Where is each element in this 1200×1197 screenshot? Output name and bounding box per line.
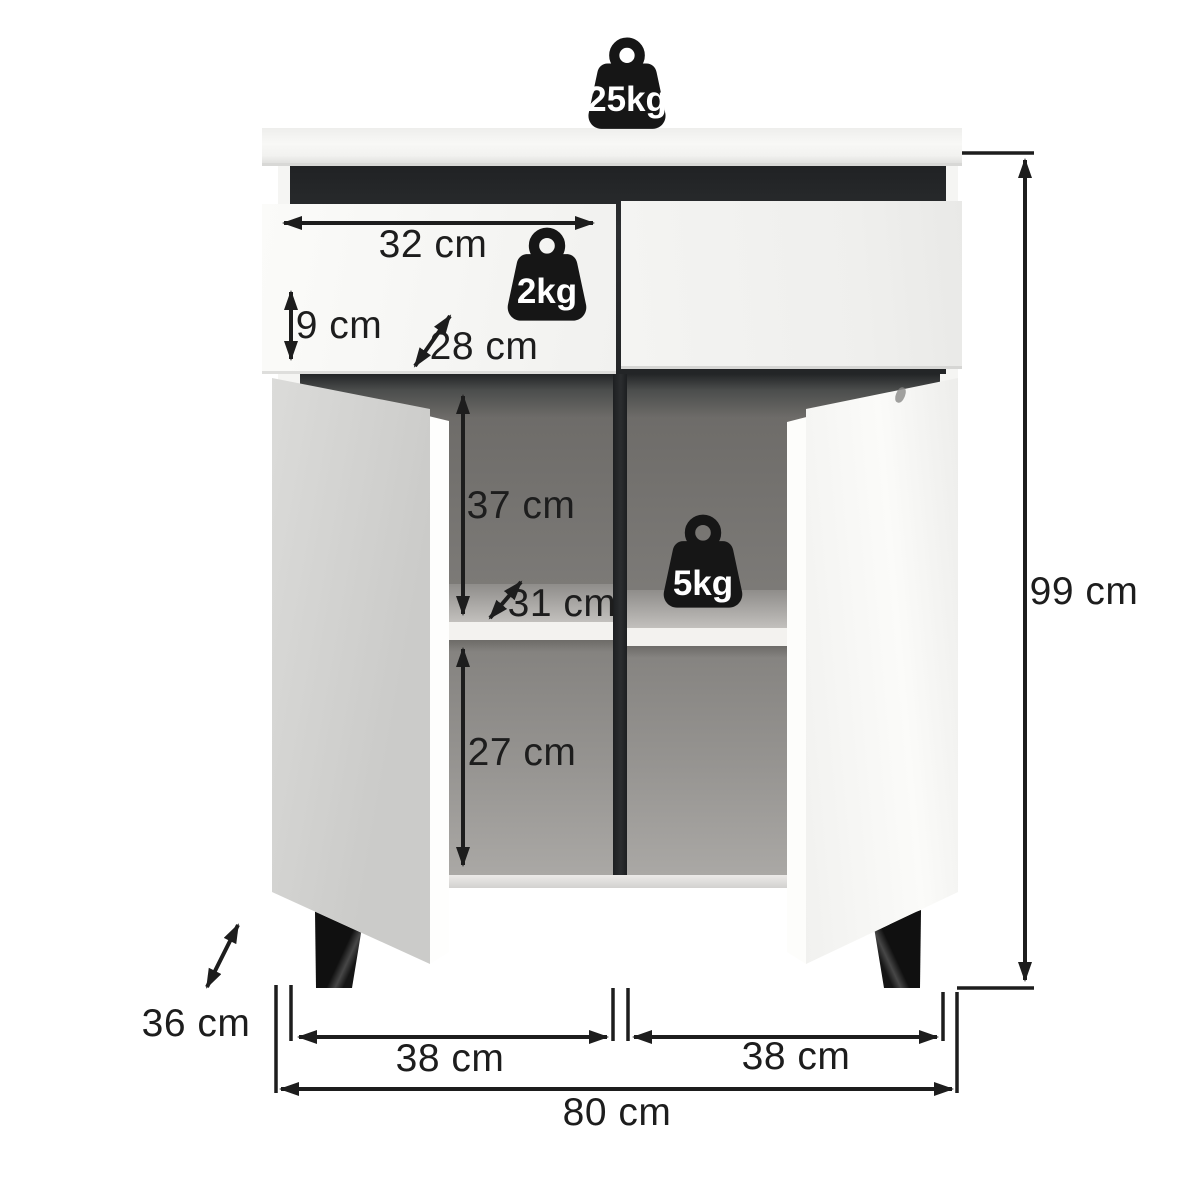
dim-upper-compartment-label: 37 cm	[467, 484, 576, 528]
dim-shelf-depth-label: 31 cm	[508, 582, 617, 626]
dim-height-label: 99 cm	[1030, 570, 1139, 614]
weight-top-label: 25kg	[587, 80, 667, 120]
dim-drawer-depth-label: 28 cm	[430, 325, 539, 369]
drawer-right-closed	[621, 201, 962, 369]
weight-shelf-label: 5kg	[673, 564, 733, 604]
dim-right-door-label: 38 cm	[742, 1035, 851, 1079]
cabinet-dimension-diagram: 25kg 2kg 5kg 32 cm 9 cm 28 cm 37 cm 31 c…	[0, 0, 1200, 1197]
weight-drawer-label: 2kg	[517, 272, 577, 312]
dim-width-label: 80 cm	[563, 1091, 672, 1135]
dim-drawer-height-label: 9 cm	[296, 304, 383, 348]
dim-left-door-label: 38 cm	[396, 1037, 505, 1081]
door-left-open	[272, 378, 430, 964]
dim-lower-compartment-label: 27 cm	[468, 731, 577, 775]
dim-depth-label: 36 cm	[142, 1002, 251, 1046]
door-right-open	[806, 378, 958, 964]
dim-drawer-width-label: 32 cm	[379, 223, 488, 267]
dim-depth-arrow	[207, 925, 238, 987]
